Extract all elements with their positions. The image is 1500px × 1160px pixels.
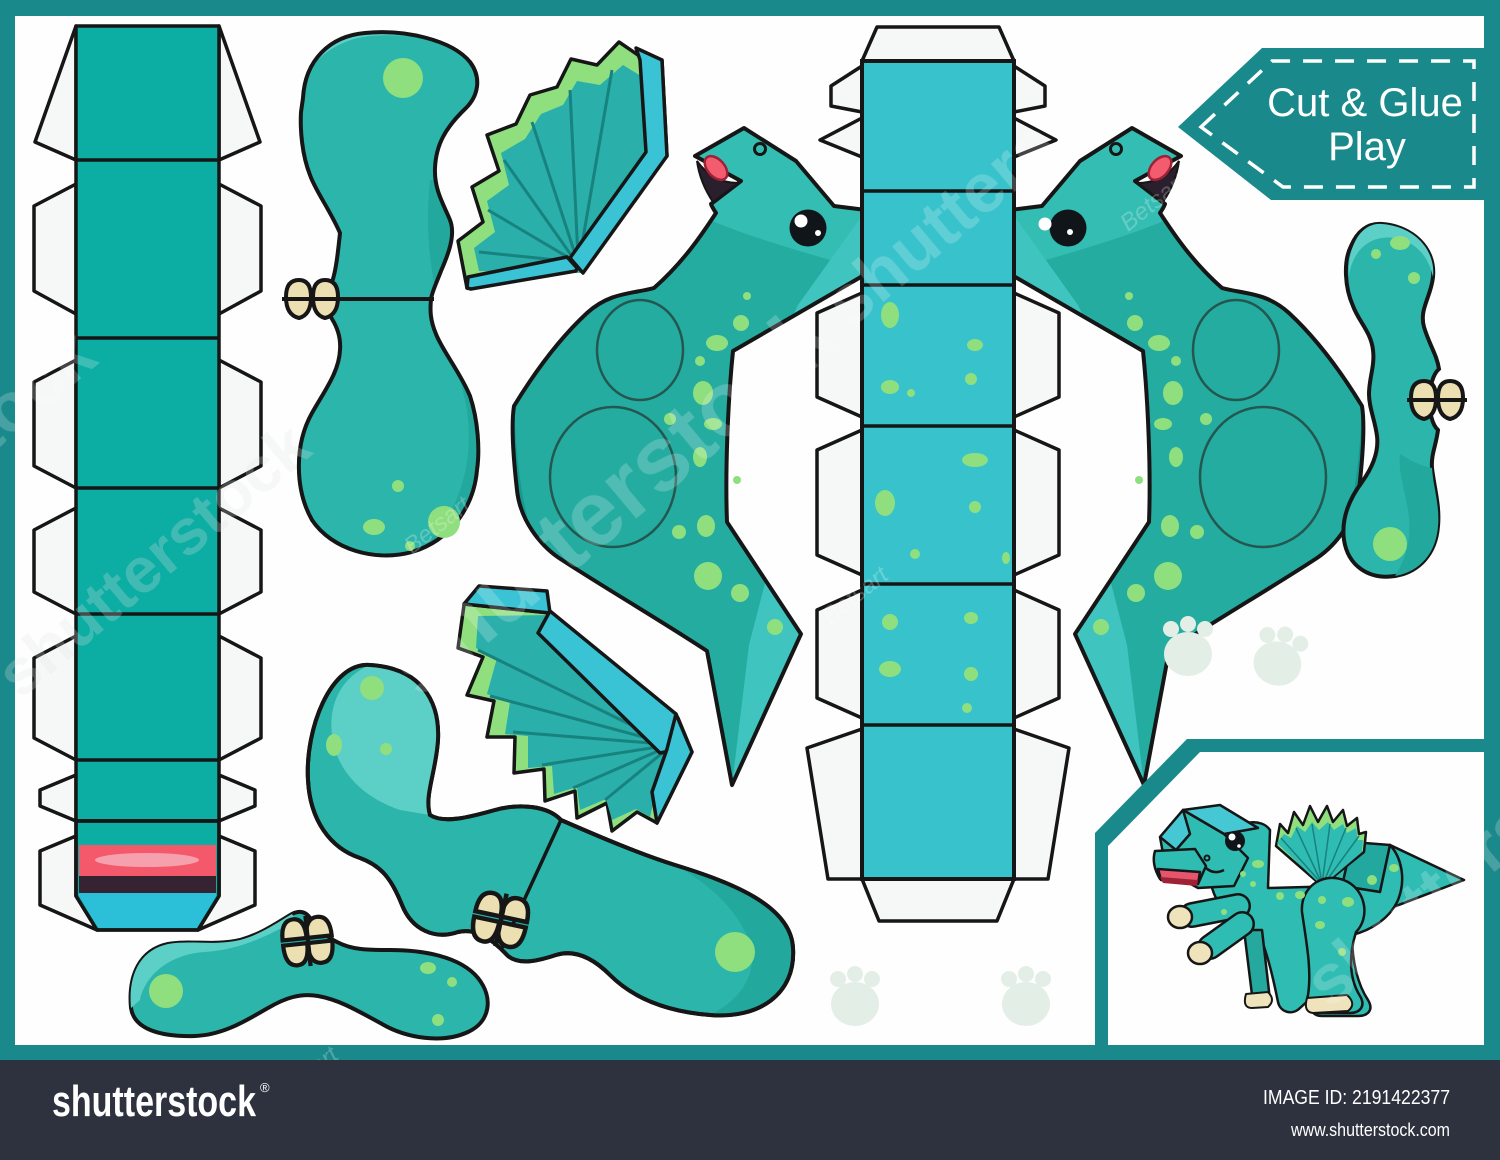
- svg-text:IMAGE ID: 2191422377: IMAGE ID: 2191422377: [1263, 1087, 1450, 1109]
- svg-text:www.shutterstock.com: www.shutterstock.com: [1290, 1120, 1450, 1140]
- svg-text:shutterstock: shutterstock: [52, 1077, 256, 1126]
- svg-text:Play: Play: [1328, 125, 1406, 169]
- svg-text:®: ®: [260, 1080, 270, 1095]
- svg-text:Cut & Glue: Cut & Glue: [1267, 81, 1463, 125]
